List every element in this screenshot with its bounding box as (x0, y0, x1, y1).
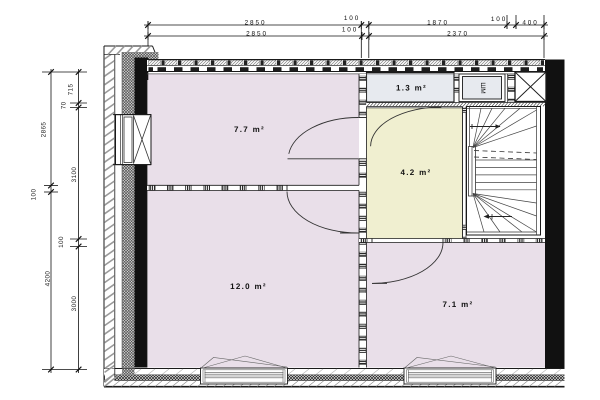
svg-text:3100: 3100 (71, 167, 78, 183)
svg-text:2865: 2865 (41, 122, 48, 138)
svg-text:1870: 1870 (427, 20, 449, 27)
svg-text:70: 70 (61, 101, 68, 109)
svg-text:100: 100 (58, 236, 65, 248)
svg-text:1.3 m²: 1.3 m² (396, 84, 427, 93)
svg-text:100: 100 (491, 16, 507, 23)
svg-text:7.1 m²: 7.1 m² (443, 300, 474, 309)
svg-text:12.0 m²: 12.0 m² (230, 282, 267, 291)
svg-text:2850: 2850 (245, 20, 267, 27)
svg-text:715: 715 (68, 84, 75, 96)
svg-text:4.2 m²: 4.2 m² (401, 168, 432, 177)
svg-text:100: 100 (344, 15, 360, 22)
svg-text:2370: 2370 (447, 31, 469, 38)
svg-text:2850: 2850 (246, 31, 268, 38)
svg-text:100: 100 (31, 189, 38, 201)
svg-text:7.7 m²: 7.7 m² (234, 125, 265, 134)
svg-text:ШМ: ШМ (479, 82, 486, 93)
svg-text:100: 100 (342, 26, 358, 33)
svg-text:4200: 4200 (45, 271, 52, 287)
svg-text:3000: 3000 (71, 296, 78, 312)
svg-text:400: 400 (522, 20, 538, 27)
